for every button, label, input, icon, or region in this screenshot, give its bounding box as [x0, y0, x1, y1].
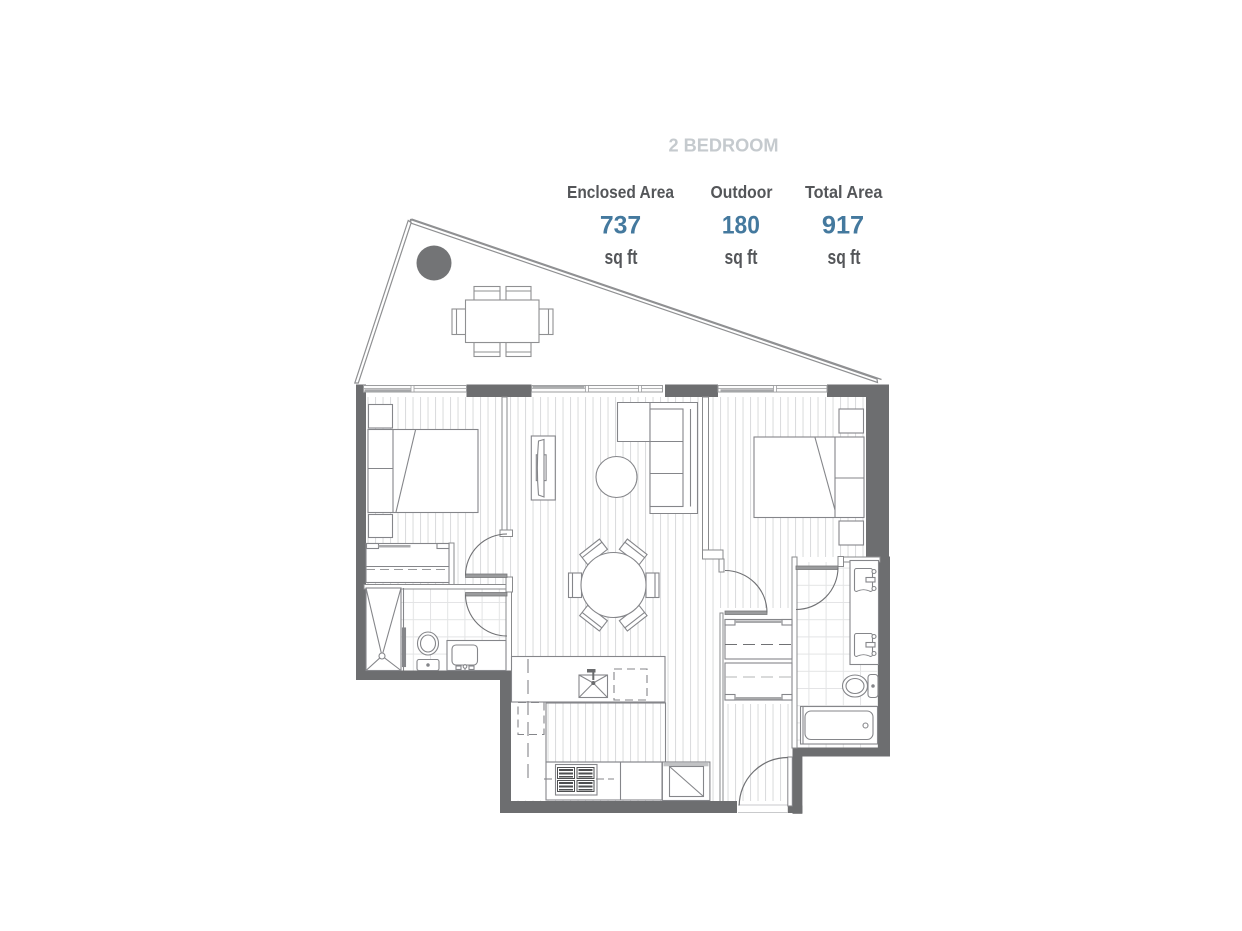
svg-text:sq ft: sq ft [725, 247, 758, 269]
svg-text:737: 737 [600, 212, 641, 240]
svg-text:Enclosed Area: Enclosed Area [567, 182, 674, 202]
svg-text:2 BEDROOM: 2 BEDROOM [669, 135, 779, 156]
svg-text:sq ft: sq ft [605, 247, 638, 269]
svg-text:180: 180 [722, 212, 760, 240]
svg-text:Outdoor: Outdoor [711, 182, 773, 202]
svg-text:sq ft: sq ft [828, 247, 861, 269]
svg-text:Total Area: Total Area [805, 182, 883, 202]
svg-text:917: 917 [822, 212, 864, 240]
